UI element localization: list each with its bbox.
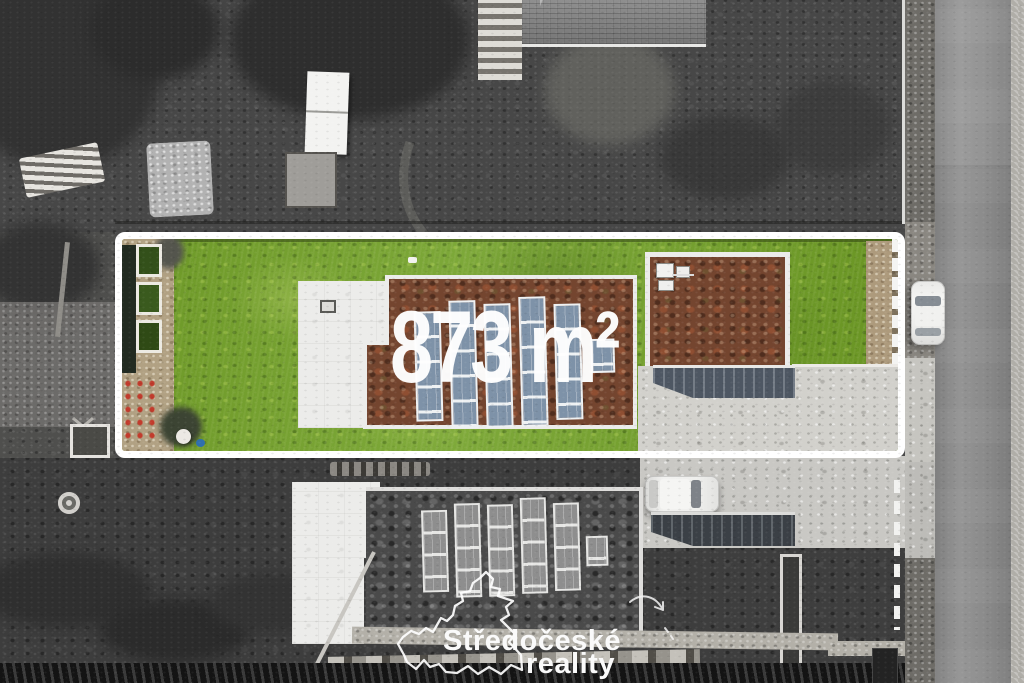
driveway-edge-line — [792, 364, 898, 367]
fence-dashes — [894, 480, 900, 630]
neighbor-garden-bed — [780, 554, 802, 672]
hvac-unit — [658, 280, 674, 291]
house-flat-roof-white — [298, 281, 387, 344]
car-windshield — [691, 480, 701, 508]
gravel-patch — [146, 140, 214, 217]
street — [905, 0, 1024, 683]
blue-object — [196, 439, 205, 447]
raised-bed — [136, 320, 162, 353]
shrub-dark — [660, 115, 790, 200]
roof-edge — [385, 275, 389, 345]
aerial-photo: 873 m² Středočeské reality — [0, 0, 1024, 683]
car-rear-window — [649, 480, 658, 508]
fence-line — [902, 0, 905, 224]
neighbor-car — [645, 476, 719, 512]
lumber-stack — [478, 0, 522, 80]
top-garden — [0, 0, 905, 232]
plot-area-label: 873 m² — [390, 296, 617, 398]
house-flat-roof-white — [298, 344, 365, 428]
roof-edge — [633, 277, 637, 427]
garage-green-roof — [645, 252, 790, 380]
hvac-pipe — [672, 274, 694, 276]
white-object-lawn — [408, 257, 417, 263]
well-cover — [58, 492, 80, 514]
road-light-top — [935, 0, 1013, 165]
roof-skylight — [320, 300, 336, 313]
waste-bins — [872, 648, 898, 683]
hipped-roof-house — [522, 0, 706, 47]
driveway-apron — [905, 462, 935, 558]
shrub-dark — [775, 80, 890, 175]
raised-bed — [136, 244, 162, 277]
left-garden — [0, 232, 115, 458]
red-flowers — [122, 377, 156, 439]
garden-bed-frame — [70, 424, 110, 458]
arrow-mark — [630, 596, 673, 639]
watermark: Středočeské reality — [380, 556, 710, 683]
roof-edge — [363, 341, 367, 429]
car-roof — [660, 479, 690, 509]
far-shoulder — [1011, 0, 1024, 683]
garden-shed-roof — [285, 152, 337, 208]
car-roof — [915, 306, 941, 326]
water-channel — [122, 245, 136, 373]
hvac-unit — [676, 266, 690, 278]
roof-edge — [385, 275, 637, 279]
car-rear-window — [915, 328, 941, 336]
car-windshield — [915, 296, 941, 306]
fence-dashes-right — [892, 239, 898, 371]
region-outline — [398, 572, 522, 674]
watermark-line2: reality — [526, 648, 615, 680]
fence-line — [115, 221, 905, 224]
garden-dome — [176, 429, 191, 444]
plot-fence-shadow — [122, 239, 898, 242]
shrub-dark — [0, 222, 100, 312]
raised-bed — [136, 282, 162, 315]
street-car — [911, 281, 945, 345]
driveway-apron — [905, 358, 935, 462]
firewood-row — [330, 462, 430, 476]
